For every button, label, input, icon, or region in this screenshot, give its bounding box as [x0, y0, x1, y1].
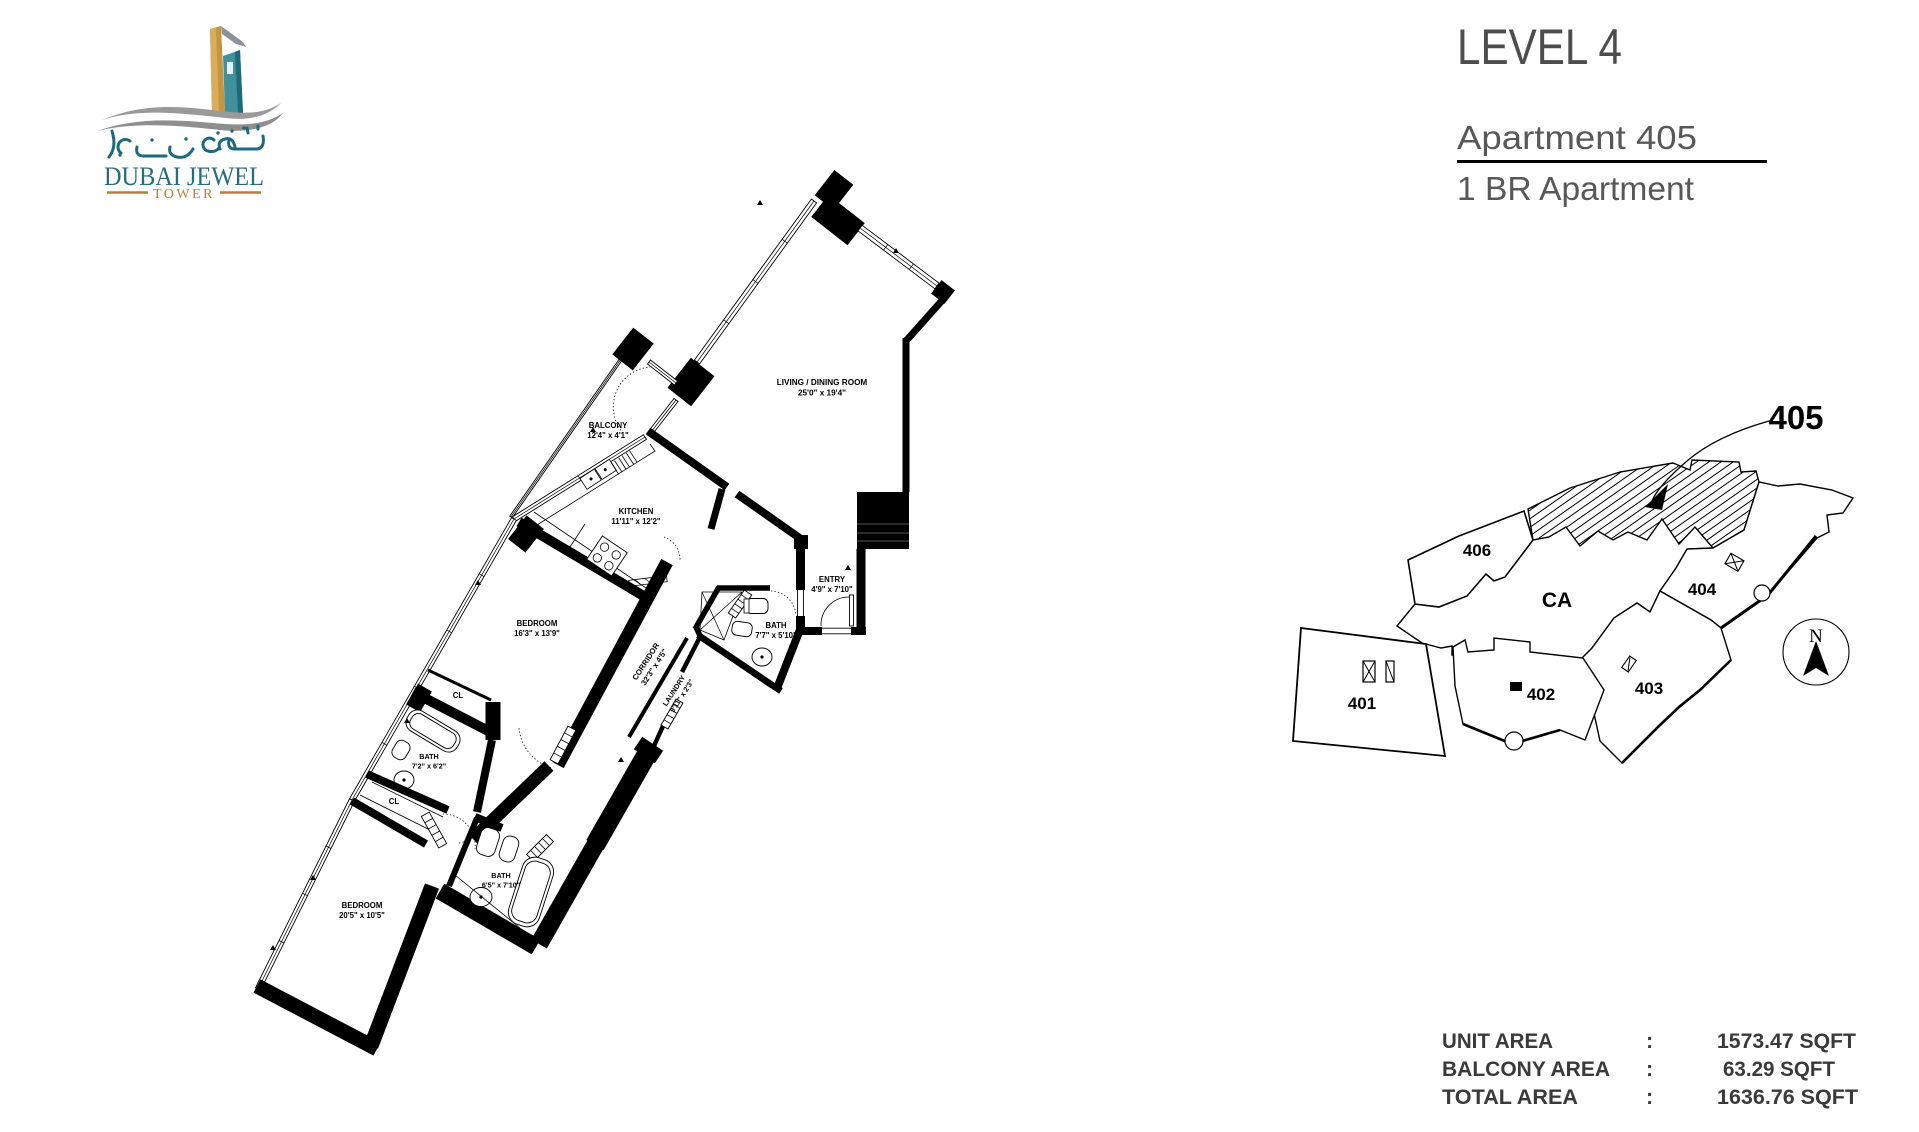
svg-text:7'2" x 6'2": 7'2" x 6'2" [412, 761, 446, 770]
svg-text:402: 402 [1527, 685, 1555, 704]
svg-text:BATH: BATH [491, 871, 510, 880]
svg-text:ENTRY: ENTRY [819, 575, 846, 584]
svg-text:TOTAL AREA: TOTAL AREA [1442, 1085, 1578, 1109]
svg-text:403: 403 [1635, 679, 1663, 698]
svg-text:BATH: BATH [419, 752, 438, 761]
svg-text:1 BR Apartment: 1 BR Apartment [1457, 170, 1694, 207]
svg-text:TOWER: TOWER [153, 187, 215, 202]
svg-text:Apartment 405: Apartment 405 [1457, 119, 1697, 156]
svg-text:UNIT AREA: UNIT AREA [1442, 1029, 1553, 1053]
svg-text:404: 404 [1688, 580, 1717, 599]
svg-text:BATH: BATH [765, 621, 786, 630]
svg-text:11'11" x 12'2": 11'11" x 12'2" [611, 517, 661, 526]
svg-text:12'4" x 4'1": 12'4" x 4'1" [587, 431, 629, 440]
svg-text:1573.47 SQFT: 1573.47 SQFT [1717, 1029, 1856, 1053]
svg-text:63.29 SQFT: 63.29 SQFT [1723, 1057, 1835, 1081]
svg-text::: : [1646, 1085, 1653, 1109]
svg-text:CL: CL [453, 691, 464, 700]
svg-text:BEDROOM: BEDROOM [342, 901, 383, 910]
svg-text::: : [1646, 1029, 1653, 1053]
svg-text:BEDROOM: BEDROOM [517, 619, 558, 628]
svg-text:401: 401 [1348, 694, 1376, 713]
svg-text:BALCONY AREA: BALCONY AREA [1442, 1057, 1610, 1081]
svg-text:LEVEL 4: LEVEL 4 [1457, 19, 1622, 75]
svg-text:CL: CL [389, 797, 400, 806]
svg-text:4'9" x 7'10": 4'9" x 7'10" [811, 585, 853, 594]
svg-text:KITCHEN: KITCHEN [619, 507, 654, 516]
svg-text:7'7" x 5'10": 7'7" x 5'10" [755, 631, 797, 640]
svg-text:25'0" x 19'4": 25'0" x 19'4" [798, 388, 846, 397]
svg-text:20'5" x 10'5": 20'5" x 10'5" [339, 911, 385, 920]
svg-text:CA: CA [1542, 589, 1572, 612]
svg-text:6'5" x 7'10": 6'5" x 7'10" [482, 880, 520, 889]
svg-text:16'3" x 13'9": 16'3" x 13'9" [514, 629, 560, 638]
svg-text:LIVING / DINING ROOM: LIVING / DINING ROOM [777, 378, 868, 387]
svg-text:406: 406 [1463, 541, 1491, 560]
svg-text::: : [1646, 1057, 1653, 1081]
svg-text:1636.76 SQFT: 1636.76 SQFT [1717, 1085, 1858, 1109]
svg-text:BALCONY: BALCONY [589, 421, 628, 430]
svg-text:405: 405 [1768, 399, 1823, 436]
